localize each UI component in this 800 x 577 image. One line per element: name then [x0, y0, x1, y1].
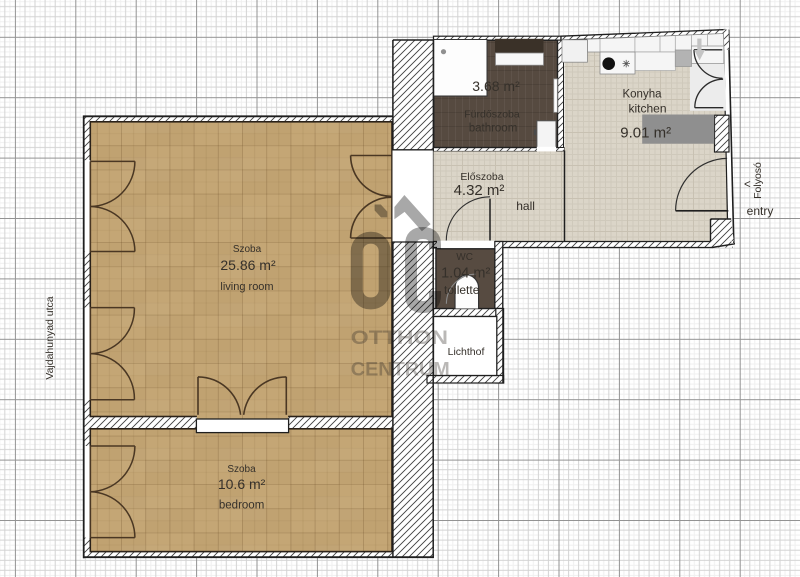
svg-text:CENTRUM: CENTRUM	[351, 358, 450, 380]
svg-text:Fürdőszoba: Fürdőszoba	[464, 109, 520, 121]
svg-text:4.32 m²: 4.32 m²	[454, 182, 505, 199]
svg-text:1.04 m²: 1.04 m²	[441, 266, 490, 282]
svg-text:Vajdahunyad utca: Vajdahunyad utca	[44, 296, 56, 379]
svg-text:Lichthof: Lichthof	[448, 346, 485, 358]
svg-text:9.01 m²: 9.01 m²	[620, 125, 671, 142]
svg-text:bathroom: bathroom	[469, 123, 518, 135]
svg-text:OTTHON: OTTHON	[351, 327, 448, 349]
svg-text:10.6 m²: 10.6 m²	[218, 476, 266, 492]
svg-text:<: <	[744, 179, 751, 191]
svg-text:Folyosó: Folyosó	[752, 162, 764, 199]
svg-text:hall: hall	[516, 199, 535, 213]
svg-text:kitchen: kitchen	[628, 102, 666, 116]
svg-text:3.68 m²: 3.68 m²	[472, 78, 520, 94]
svg-text:Szoba: Szoba	[227, 464, 256, 475]
svg-text:bedroom: bedroom	[219, 500, 264, 512]
svg-text:entry: entry	[747, 204, 774, 218]
svg-text:Konyha: Konyha	[622, 89, 662, 101]
svg-text:living room: living room	[220, 281, 273, 293]
svg-text:WC: WC	[456, 252, 473, 263]
svg-text:Szoba: Szoba	[233, 244, 262, 255]
svg-text:toilette: toilette	[444, 283, 480, 297]
svg-text:25.86 m²: 25.86 m²	[220, 257, 276, 273]
